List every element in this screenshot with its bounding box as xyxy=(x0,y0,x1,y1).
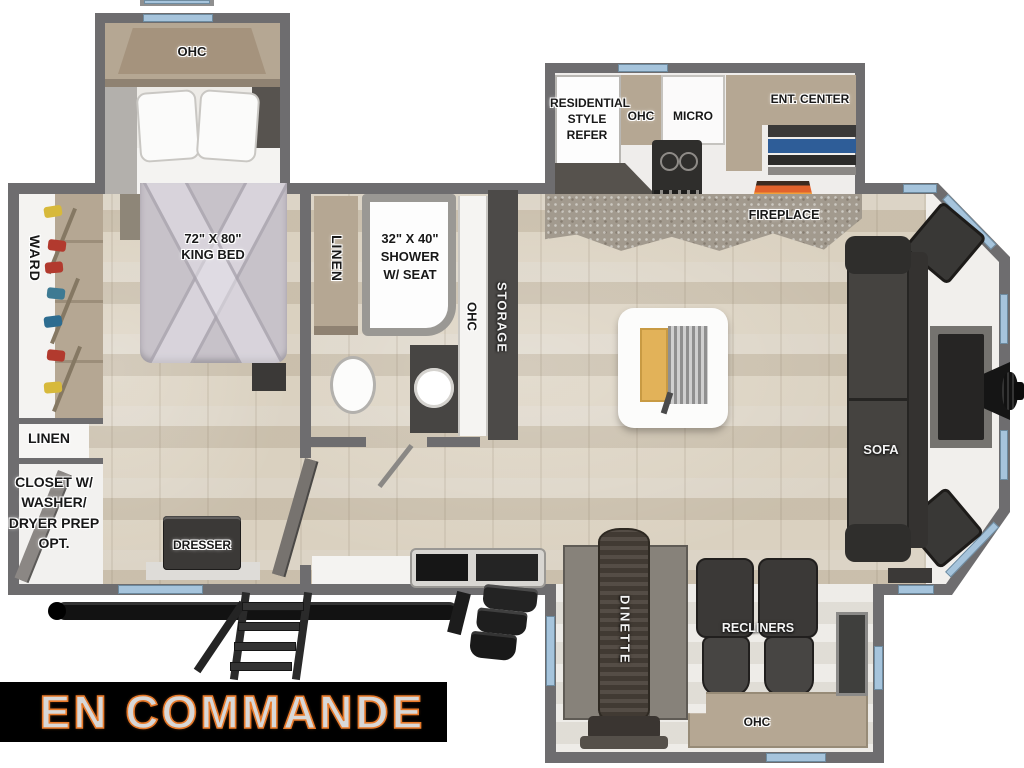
cutting-board xyxy=(640,328,668,402)
label-refer-line1: RESIDENTIAL xyxy=(550,95,624,111)
bed-slide-side-left xyxy=(105,87,137,194)
dinette-window-left-icon xyxy=(546,616,555,686)
step-rung xyxy=(238,622,300,631)
dinette-side-window xyxy=(836,612,868,696)
bed-slide-wall-right xyxy=(280,13,290,194)
clothes-icon xyxy=(45,261,64,274)
floorplan-canvas: OHC 72" X 80" KING BED WARD LINEN CLOSET… xyxy=(0,0,1024,768)
step-rung xyxy=(242,602,304,611)
dinette-bench-left xyxy=(563,545,601,720)
step-rung xyxy=(230,662,292,671)
clothes-icon xyxy=(43,315,62,328)
label-kitchen-ohc: OHC xyxy=(620,109,662,123)
label-closet-line4: OPT. xyxy=(0,533,108,553)
status-banner: EN COMMANDE xyxy=(0,682,447,742)
dinette-window-bottom-icon xyxy=(766,753,826,762)
front-window-right-upper-icon xyxy=(1000,294,1008,344)
clothes-icon xyxy=(47,239,66,252)
tray-compartment xyxy=(476,554,538,581)
bed-slide-window-icon xyxy=(143,14,213,22)
awning-end-cap xyxy=(48,602,66,620)
entry-steps-center xyxy=(466,583,540,673)
label-linen-left: LINEN xyxy=(18,430,80,447)
ent-center-shelf-blue xyxy=(768,139,856,153)
entry-steps-left xyxy=(214,590,314,686)
label-shower-line2: SHOWER xyxy=(368,248,452,266)
range-stove xyxy=(652,140,702,202)
label-ent-center: ENT. CENTER xyxy=(764,92,856,106)
bedroom-ohc-shelf-edge xyxy=(105,79,280,87)
label-shower-line1: 32" X 40" xyxy=(368,230,452,248)
label-dinette-ohc: OHC xyxy=(734,715,780,729)
ent-center-shelf-dark xyxy=(768,125,856,137)
wall-bench xyxy=(888,568,932,583)
recliner-left-seat xyxy=(702,636,750,696)
front-tv-screen xyxy=(938,334,984,440)
label-closet: CLOSET W/ WASHER/ DRYER PREP OPT. xyxy=(0,472,108,553)
toilet xyxy=(330,356,376,414)
bottom-window-left-icon xyxy=(118,585,203,594)
label-dresser: DRESSER xyxy=(162,538,242,552)
hitch-tip xyxy=(1014,382,1024,400)
top-edge-window-icon xyxy=(144,0,210,4)
burner-icon xyxy=(679,152,698,171)
nightstand xyxy=(120,194,140,240)
recliner-right-seat xyxy=(764,636,814,696)
burner-icon xyxy=(660,152,679,171)
dinette-window-right-icon xyxy=(874,646,883,690)
bed-foot-bench xyxy=(252,363,286,391)
label-refer: RESIDENTIAL STYLE REFER xyxy=(550,95,624,144)
label-closet-line1: CLOSET W/ xyxy=(0,472,108,492)
dinette-slide-wall-bottom xyxy=(545,752,884,763)
kitchen-window-icon xyxy=(618,64,668,72)
bath-sink xyxy=(414,368,454,408)
label-ohc-divider: OHC xyxy=(464,278,480,354)
front-window-right-lower-icon xyxy=(1000,430,1008,480)
label-king-bed: 72" X 80" KING BED xyxy=(150,231,276,262)
label-shower-line3: W/ SEAT xyxy=(368,266,452,284)
label-dinette: DINETTE xyxy=(617,572,633,688)
sofa xyxy=(847,242,909,558)
top-window-nose-icon xyxy=(903,184,937,193)
label-shower: 32" X 40" SHOWER W/ SEAT xyxy=(368,230,452,285)
bath-south-wall-right xyxy=(427,437,480,447)
bedroom-bath-wall xyxy=(300,194,311,458)
king-bed xyxy=(140,183,287,363)
wardrobe-shelf-line xyxy=(55,300,103,303)
dinette-bench-right xyxy=(648,545,688,720)
label-ward: WARD xyxy=(26,212,43,304)
label-closet-line2: WASHER/ xyxy=(0,492,108,512)
sofa-cushion-divider xyxy=(849,398,907,401)
bath-south-wall-left xyxy=(300,437,366,447)
label-refer-line3: REFER xyxy=(550,127,624,143)
status-banner-text: EN COMMANDE xyxy=(40,685,426,739)
bath-linen-cabinet-edge xyxy=(314,326,358,335)
ent-center-shelf-gray xyxy=(768,167,856,175)
label-micro: MICRO xyxy=(660,109,726,123)
awning-bracket xyxy=(447,591,471,635)
kitchen-partition xyxy=(726,75,762,171)
label-storage: STORAGE xyxy=(494,258,510,378)
top-wall-left xyxy=(8,183,95,194)
dinette-table-foot xyxy=(580,736,668,749)
pillow xyxy=(196,89,261,163)
kitchen-slide-wall-right xyxy=(855,63,865,194)
label-refer-line2: STYLE xyxy=(550,111,624,127)
label-king-bed-line2: KING BED xyxy=(150,247,276,263)
sofa-armrest-bottom xyxy=(845,524,911,562)
kitchen-island xyxy=(618,308,728,428)
bottom-window-nose-icon xyxy=(898,585,934,594)
island-sink xyxy=(668,326,708,404)
label-sofa: SOFA xyxy=(850,442,912,458)
label-closet-line3: DRYER PREP xyxy=(0,513,108,533)
tray-compartment xyxy=(416,554,468,581)
label-recliners: RECLINERS xyxy=(700,621,816,636)
label-bedroom-ohc: OHC xyxy=(160,44,224,60)
label-fireplace: FIREPLACE xyxy=(742,208,826,223)
ent-center-shelf-dark2 xyxy=(768,155,856,165)
clothes-icon xyxy=(46,349,65,362)
step-rung xyxy=(234,642,296,651)
bedroom-bath-wall-stub xyxy=(300,565,311,584)
step xyxy=(469,631,517,662)
label-king-bed-line1: 72" X 80" xyxy=(150,231,276,247)
clothes-icon xyxy=(46,287,65,300)
entry-step-tray xyxy=(410,548,546,588)
sofa-armrest-top xyxy=(845,236,911,274)
label-bath-linen: LINEN xyxy=(328,218,345,298)
clothes-icon xyxy=(44,381,63,394)
kitchen-slide-wall-top xyxy=(545,63,865,73)
bed-slide-wall-left xyxy=(95,13,105,194)
pillow xyxy=(136,89,201,163)
